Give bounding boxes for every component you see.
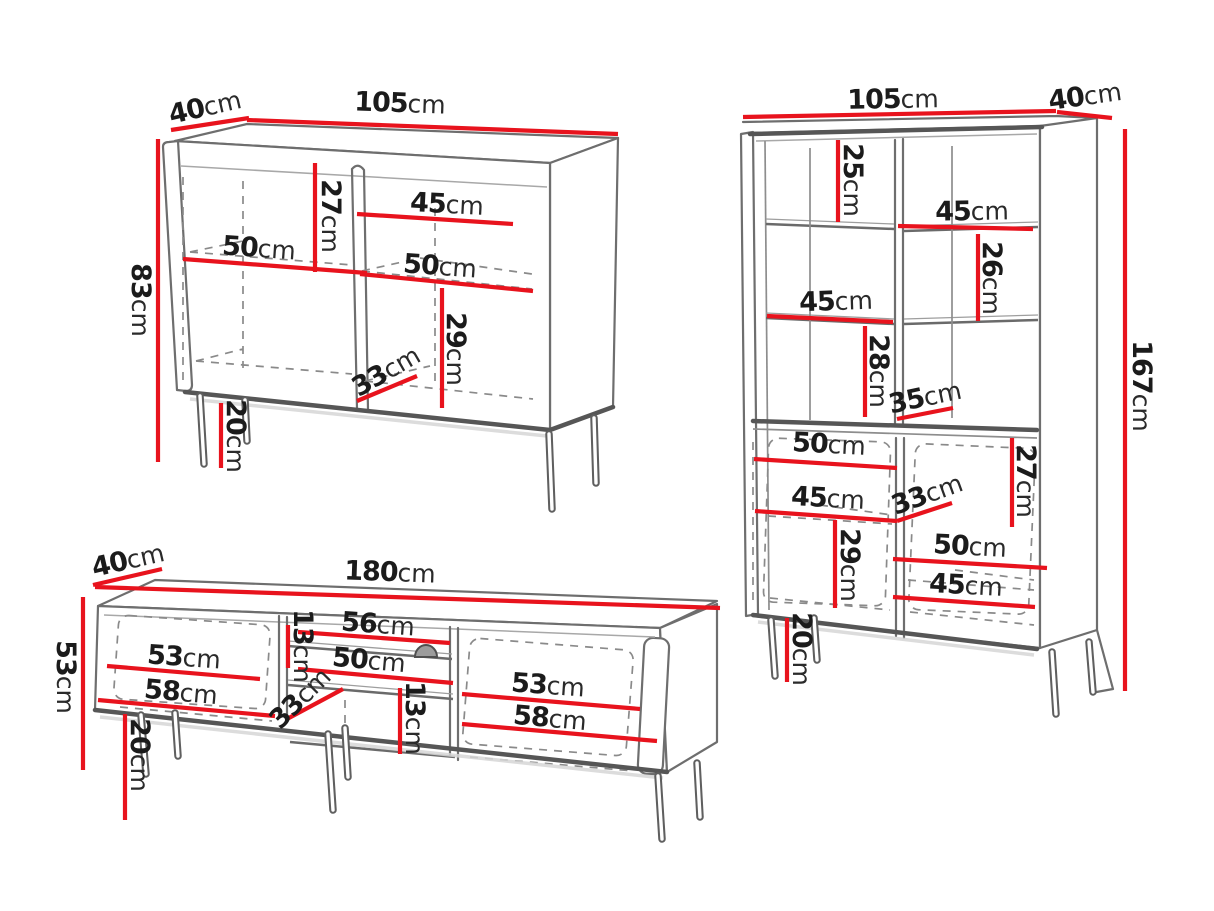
dim-tall-width: 105cm: [847, 83, 939, 116]
dim-sideboard-50-right: 50cm: [402, 248, 478, 284]
dim-tv-58-left: 58cm: [143, 673, 219, 710]
tv-stand-side-face: [660, 604, 717, 772]
tall-cabinet-side-face: [1040, 118, 1097, 648]
dim-sideboard-width: 105cm: [354, 86, 447, 120]
dim-tall-50-left-door: 50cm: [791, 427, 866, 462]
dim-sideboard-20: 20cm: [221, 399, 252, 473]
dim-tall-depth: 40cm: [1046, 76, 1123, 117]
dim-tv-50: 50cm: [331, 641, 407, 678]
dim-tv-53-right: 53cm: [510, 667, 586, 703]
dim-sideboard-50-left: 50cm: [221, 230, 297, 266]
dim-tall-height: 167cm: [1127, 340, 1158, 431]
dim-sideboard-27: 27cm: [316, 179, 347, 253]
dim-tall-26: 26cm: [977, 241, 1008, 315]
dim-tv-56: 56cm: [340, 606, 416, 642]
dim-tv-20: 20cm: [125, 718, 156, 792]
dim-tv-13-bottom: 13cm: [400, 681, 431, 755]
dim-tall-29: 29cm: [835, 528, 866, 602]
dim-tv-width: 180cm: [344, 555, 437, 589]
diagram-canvas: 40cm 105cm 83cm 27cm 45cm 50cm 50cm 29cm…: [0, 0, 1214, 911]
sideboard-side-face: [550, 138, 618, 430]
dim-tall-45-left-door: 45cm: [790, 481, 865, 516]
dim-tall-25: 25cm: [838, 143, 869, 217]
dim-tall-27: 27cm: [1011, 444, 1042, 518]
dim-tv-58-right: 58cm: [512, 699, 588, 736]
dim-tall-45-mid-left: 45cm: [799, 284, 874, 318]
dim-tall-45-top-right: 45cm: [935, 195, 1009, 227]
furniture-dimensions-diagram: 40cm 105cm 83cm 27cm 45cm 50cm 50cm 29cm…: [0, 0, 1214, 911]
dim-sideboard-29: 29cm: [441, 312, 472, 386]
dim-tall-50-right-door: 50cm: [932, 529, 1007, 564]
dim-tall-20: 20cm: [787, 612, 818, 686]
dim-sideboard-45: 45cm: [409, 187, 484, 222]
dim-tv-53-left: 53cm: [146, 639, 222, 675]
dim-sideboard-height: 83cm: [126, 263, 157, 337]
dim-tv-height: 53cm: [51, 640, 82, 714]
dim-tall-45-right-door: 45cm: [928, 568, 1003, 603]
